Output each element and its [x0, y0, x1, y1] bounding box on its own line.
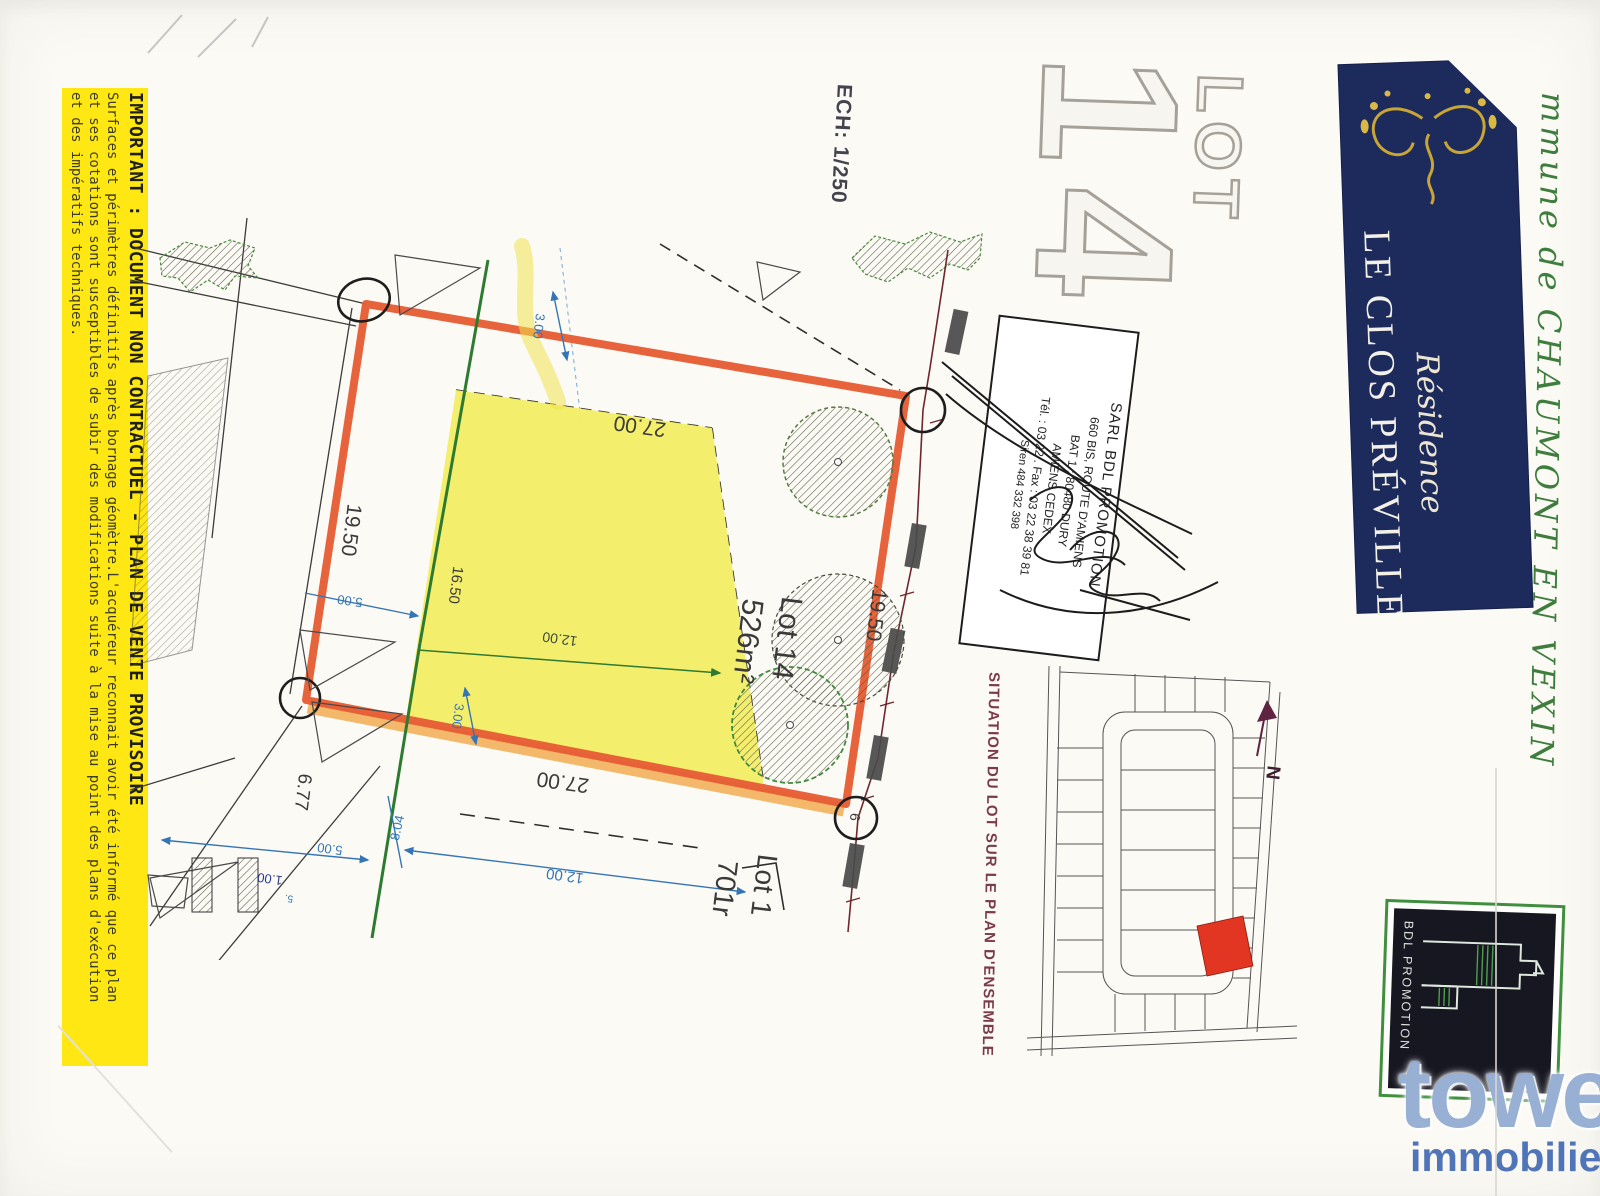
- commune-note: mmune de CHAUMONT EN VEXIN: [1522, 92, 1572, 793]
- dim-5: 5.: [284, 892, 294, 904]
- signature-scribble: [880, 290, 1300, 710]
- wall-hatches: [192, 858, 258, 912]
- dim-1950-left: 19.50: [336, 503, 365, 558]
- gold-ornament-icon: [1351, 74, 1506, 219]
- corner-mark-number: 6: [847, 812, 864, 822]
- dim-804: 8.04: [387, 814, 407, 842]
- disclaimer-line: et ses cotations sont susceptibles de su…: [86, 92, 102, 1062]
- banner-name-label: LE CLOS PRÉVILLE: [1354, 229, 1413, 654]
- scale-label: ECH: 1/250: [824, 83, 856, 234]
- dim-500-bottom: 5.00: [316, 840, 343, 858]
- dim-500-mid: 5.00: [336, 592, 363, 610]
- disclaimer-line: Surfaces et périmètres définitifs après …: [104, 92, 120, 1062]
- highlighted-lot: [1197, 916, 1253, 976]
- lot1-name: Lot 1: [745, 852, 783, 918]
- vegetation-patch: [852, 232, 982, 282]
- north-label: N: [1261, 765, 1284, 781]
- dim-27-bottom: 27.00: [535, 767, 590, 797]
- dim-1200-outer: 12.00: [545, 864, 585, 886]
- dim-300-top: 3.00: [530, 313, 548, 340]
- lot-number: 14: [1011, 53, 1200, 329]
- dim-677: 6.77: [290, 772, 315, 811]
- disclaimer-line: et des impératifs techniques.: [68, 92, 84, 1062]
- plan-drawing: 27.00 27.00 19.50 19.50 16.50 12.00 12.0…: [130, 218, 990, 960]
- vegetation-patch: [160, 240, 258, 292]
- tower-watermark-sub: immobilier: [1410, 1134, 1600, 1181]
- lot-division-lines: [1057, 674, 1265, 1032]
- lot1-area: 701r: [706, 859, 744, 918]
- dim-300-bottom: 3.00: [449, 703, 467, 730]
- dim-100: 1.00: [256, 870, 283, 888]
- residence-banner: Résidence LE CLOS PRÉVILLE: [1338, 59, 1532, 613]
- road-hatch-strip: [130, 358, 228, 666]
- situation-map: N: [1015, 660, 1305, 1065]
- banner-residence-label: Résidence: [1409, 352, 1455, 653]
- paper-edge: [1495, 768, 1497, 1196]
- banner-text: Résidence LE CLOS PRÉVILLE: [1350, 222, 1455, 655]
- pen-marks: [140, 5, 270, 65]
